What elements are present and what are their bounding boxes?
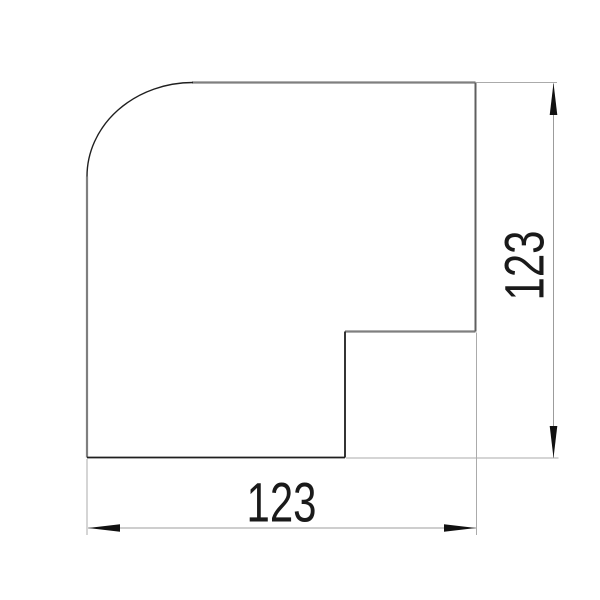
arrowhead-left xyxy=(88,524,120,532)
arrowhead-right xyxy=(444,524,476,532)
rounded-corner-arc xyxy=(87,83,193,177)
arrowhead-up xyxy=(550,83,558,115)
part-outline-notch-and-bottom xyxy=(87,332,345,458)
drawing-svg: 123 123 xyxy=(0,0,600,600)
part-outline xyxy=(87,83,476,458)
extension-lines xyxy=(87,83,559,536)
arrowhead-down xyxy=(550,426,558,458)
dimension-horizontal: 123 xyxy=(88,471,476,534)
dimension-vertical: 123 xyxy=(493,83,558,458)
dimension-label-width: 123 xyxy=(247,471,317,534)
dimension-label-height: 123 xyxy=(493,231,556,301)
part-outline-gray-segments xyxy=(87,83,476,458)
technical-drawing-canvas: 123 123 xyxy=(0,0,600,600)
